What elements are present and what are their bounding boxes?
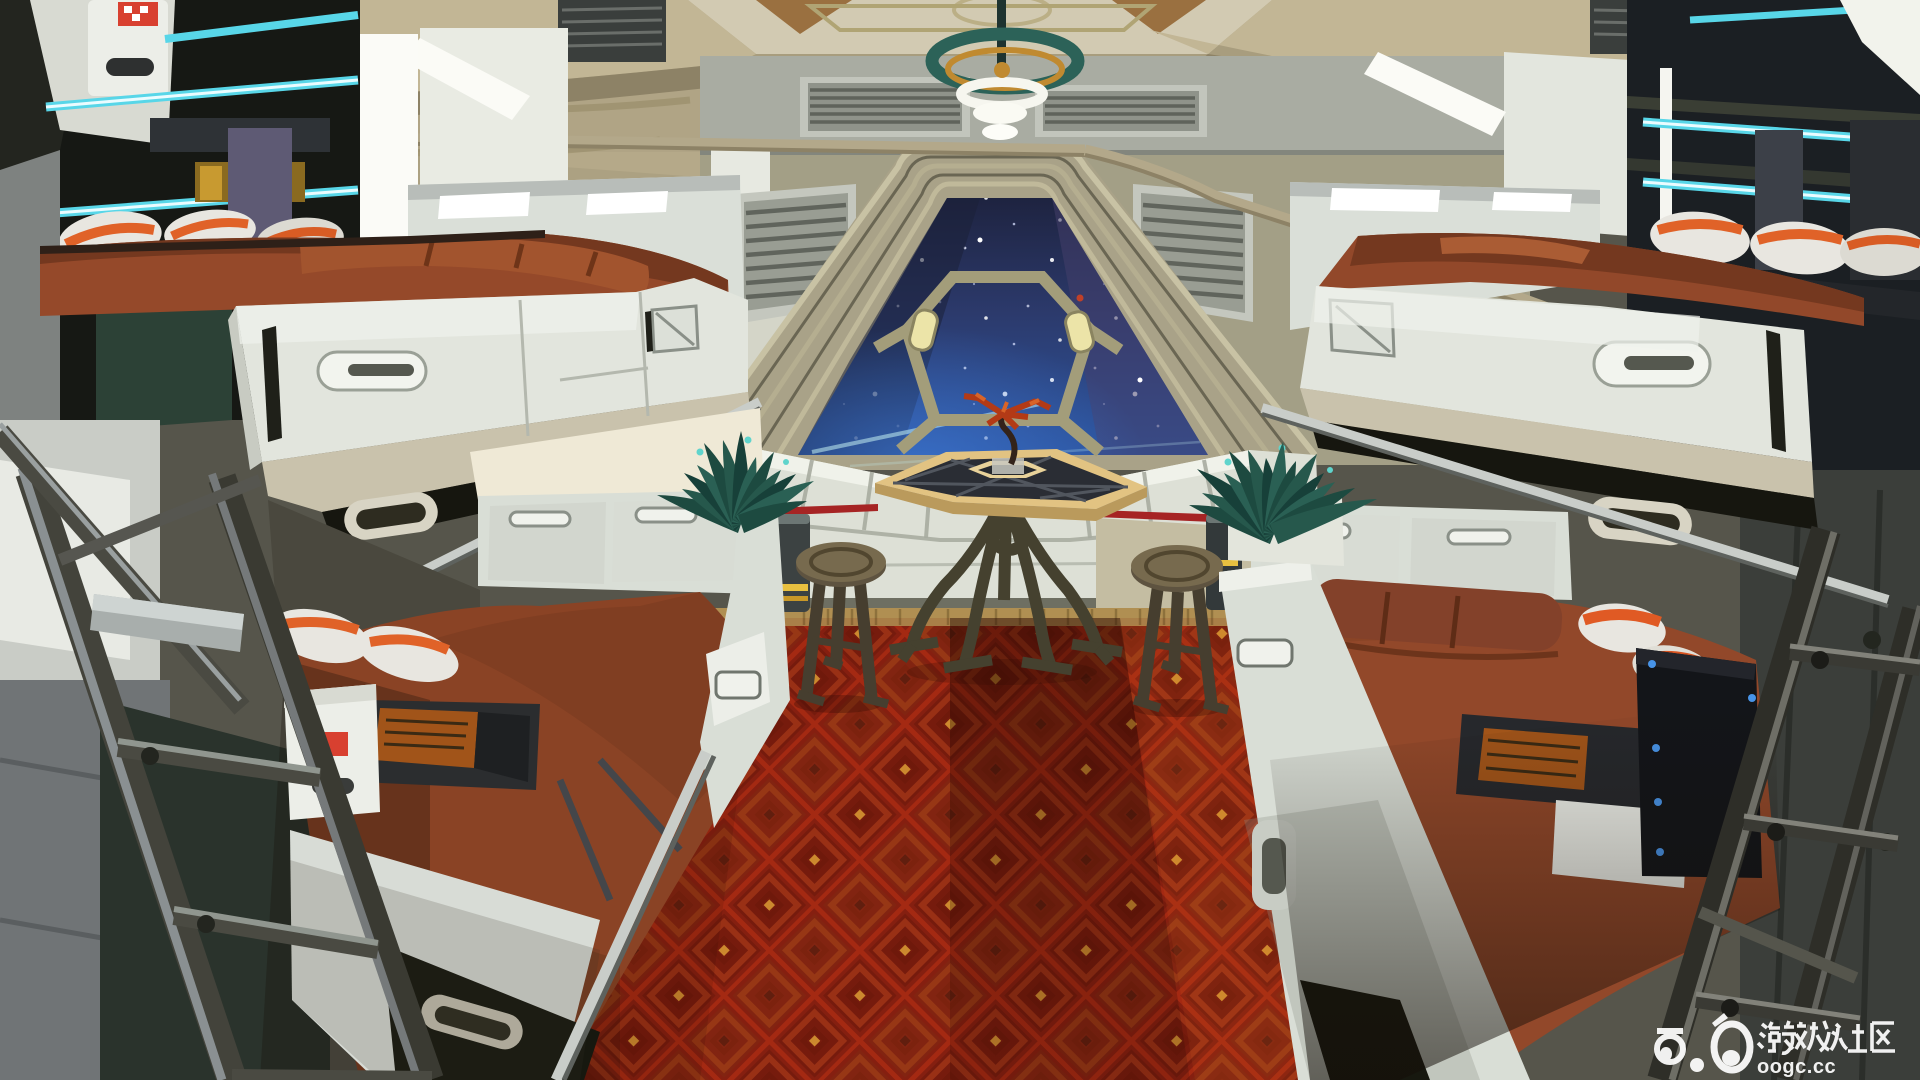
svg-text:oogc.cc: oogc.cc — [1757, 1056, 1836, 1078]
